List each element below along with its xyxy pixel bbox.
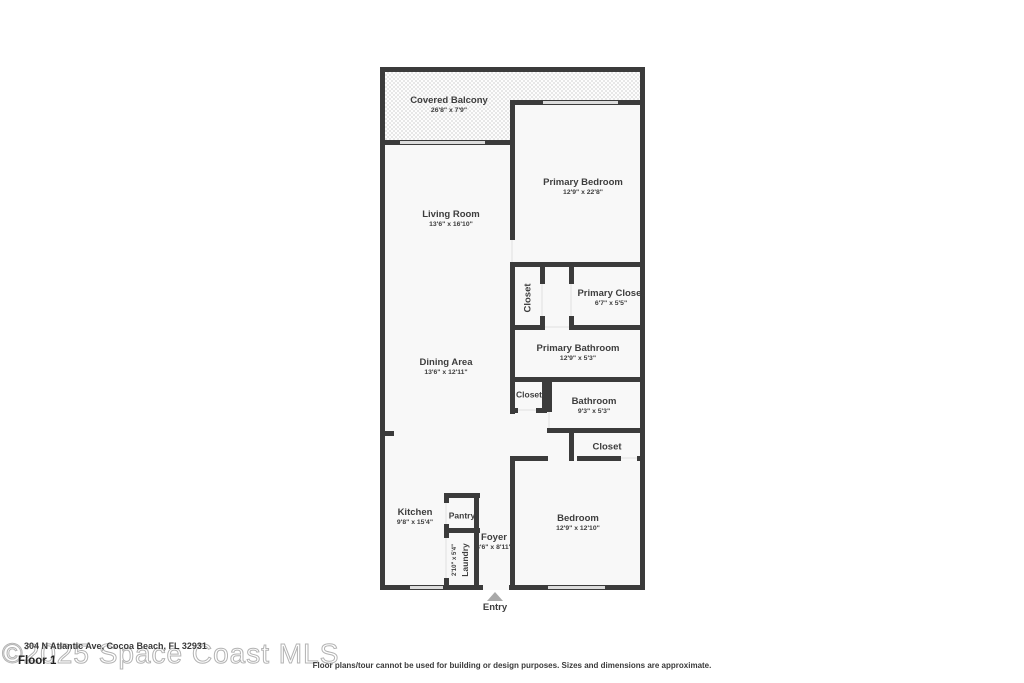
room-label-primary-bedroom: Primary Bedroom 12'9" x 22'8": [543, 177, 623, 197]
window: [400, 140, 485, 145]
room-dims: 12'9" x 5'3": [537, 354, 620, 363]
room-name: Dining Area: [420, 357, 473, 368]
room-name: Bedroom: [556, 513, 600, 524]
room-name: Laundry: [460, 543, 471, 577]
door-opening: [511, 240, 513, 262]
room-name: Closet: [516, 390, 542, 401]
door-opening: [621, 457, 637, 459]
room-name: Closet: [592, 442, 621, 453]
wall: [380, 431, 394, 436]
wall: [510, 456, 548, 461]
room-label-bedroom: Bedroom 12'9" x 12'10": [556, 513, 600, 533]
wall: [510, 408, 518, 413]
wall: [444, 524, 449, 538]
window: [548, 585, 605, 590]
room-name: Primary Closet: [577, 288, 644, 299]
door-opening: [541, 284, 543, 316]
room-label-foyer: Foyer 3'6" x 8'11": [476, 532, 512, 552]
room-dims: 13'6" x 12'11": [420, 368, 473, 377]
window: [543, 100, 618, 105]
room-label-dining-area: Dining Area 13'6" x 12'11": [420, 357, 473, 377]
door-opening: [445, 538, 447, 578]
property-address: 304 N Atlantic Ave, Cocoa Beach, FL 3293…: [24, 641, 207, 651]
room-dims: 26'8" x 7'9": [410, 106, 488, 115]
entry-arrow-icon: [487, 592, 503, 601]
room-label-primary-hall-closet: Closet: [523, 283, 534, 312]
wall: [536, 408, 547, 413]
wall: [444, 528, 480, 533]
wall: [637, 456, 645, 461]
room-label-laundry: 2'10" x 5'4" Laundry: [451, 543, 471, 577]
floor-plan-page: Covered Balcony 26'8" x 7'9" Primary Bed…: [0, 0, 1024, 683]
wall: [569, 267, 574, 284]
wall: [510, 105, 515, 240]
wall: [540, 267, 545, 284]
wall: [510, 456, 515, 590]
wall: [547, 382, 552, 412]
door-opening: [570, 284, 572, 316]
room-name: Pantry: [449, 511, 475, 522]
room-name: Kitchen: [397, 507, 433, 518]
door-opening: [545, 326, 569, 328]
entry-label: Entry: [483, 602, 507, 613]
room-name: Bathroom: [572, 396, 617, 407]
wall: [510, 325, 545, 330]
window: [410, 585, 443, 590]
room-dims: 9'3" x 5'3": [572, 407, 617, 416]
wall: [380, 67, 385, 590]
room-dims: 12'9" x 12'10": [556, 524, 600, 533]
room-dims: 13'6" x 16'10": [422, 220, 480, 229]
room-dims: 2'10" x 5'4": [451, 544, 460, 576]
room-name: Living Room: [422, 209, 480, 220]
wall: [577, 456, 621, 461]
room-dims: 9'8" x 15'4": [397, 518, 433, 527]
room-label-living-room: Living Room 13'6" x 16'10": [422, 209, 480, 229]
room-label-kitchen: Kitchen 9'8" x 15'4": [397, 507, 433, 527]
wall: [444, 578, 449, 590]
door-opening: [445, 503, 447, 524]
room-label-primary-closet: Primary Closet 6'7" x 5'5": [577, 288, 644, 308]
room-label-bedroom-closet: Closet: [592, 442, 621, 453]
room-name: Closet: [523, 283, 534, 312]
wall: [569, 433, 574, 461]
disclaimer-text: Floor plans/tour cannot be used for buil…: [0, 661, 1024, 670]
door-opening: [548, 412, 550, 428]
room-name: Primary Bathroom: [537, 343, 620, 354]
room-name: Primary Bedroom: [543, 177, 623, 188]
wall: [510, 262, 645, 267]
wall: [510, 262, 515, 414]
wall: [444, 493, 449, 503]
room-label-primary-bathroom: Primary Bathroom 12'9" x 5'3": [537, 343, 620, 363]
room-label-covered-balcony: Covered Balcony 26'8" x 7'9": [410, 95, 488, 115]
room-name: Foyer: [476, 532, 512, 543]
room-label-pantry: Pantry: [449, 511, 475, 522]
wall: [569, 325, 645, 330]
door-opening: [518, 409, 536, 411]
wall: [380, 67, 645, 72]
wall: [510, 377, 645, 382]
room-name: Covered Balcony: [410, 95, 488, 106]
room-dims: 12'9" x 22'8": [543, 188, 623, 197]
wall: [547, 428, 645, 433]
room-label-hall-closet: Closet: [516, 390, 542, 401]
room-label-bathroom: Bathroom 9'3" x 5'3": [572, 396, 617, 416]
room-dims: 6'7" x 5'5": [577, 299, 644, 308]
room-dims: 3'6" x 8'11": [476, 543, 512, 552]
